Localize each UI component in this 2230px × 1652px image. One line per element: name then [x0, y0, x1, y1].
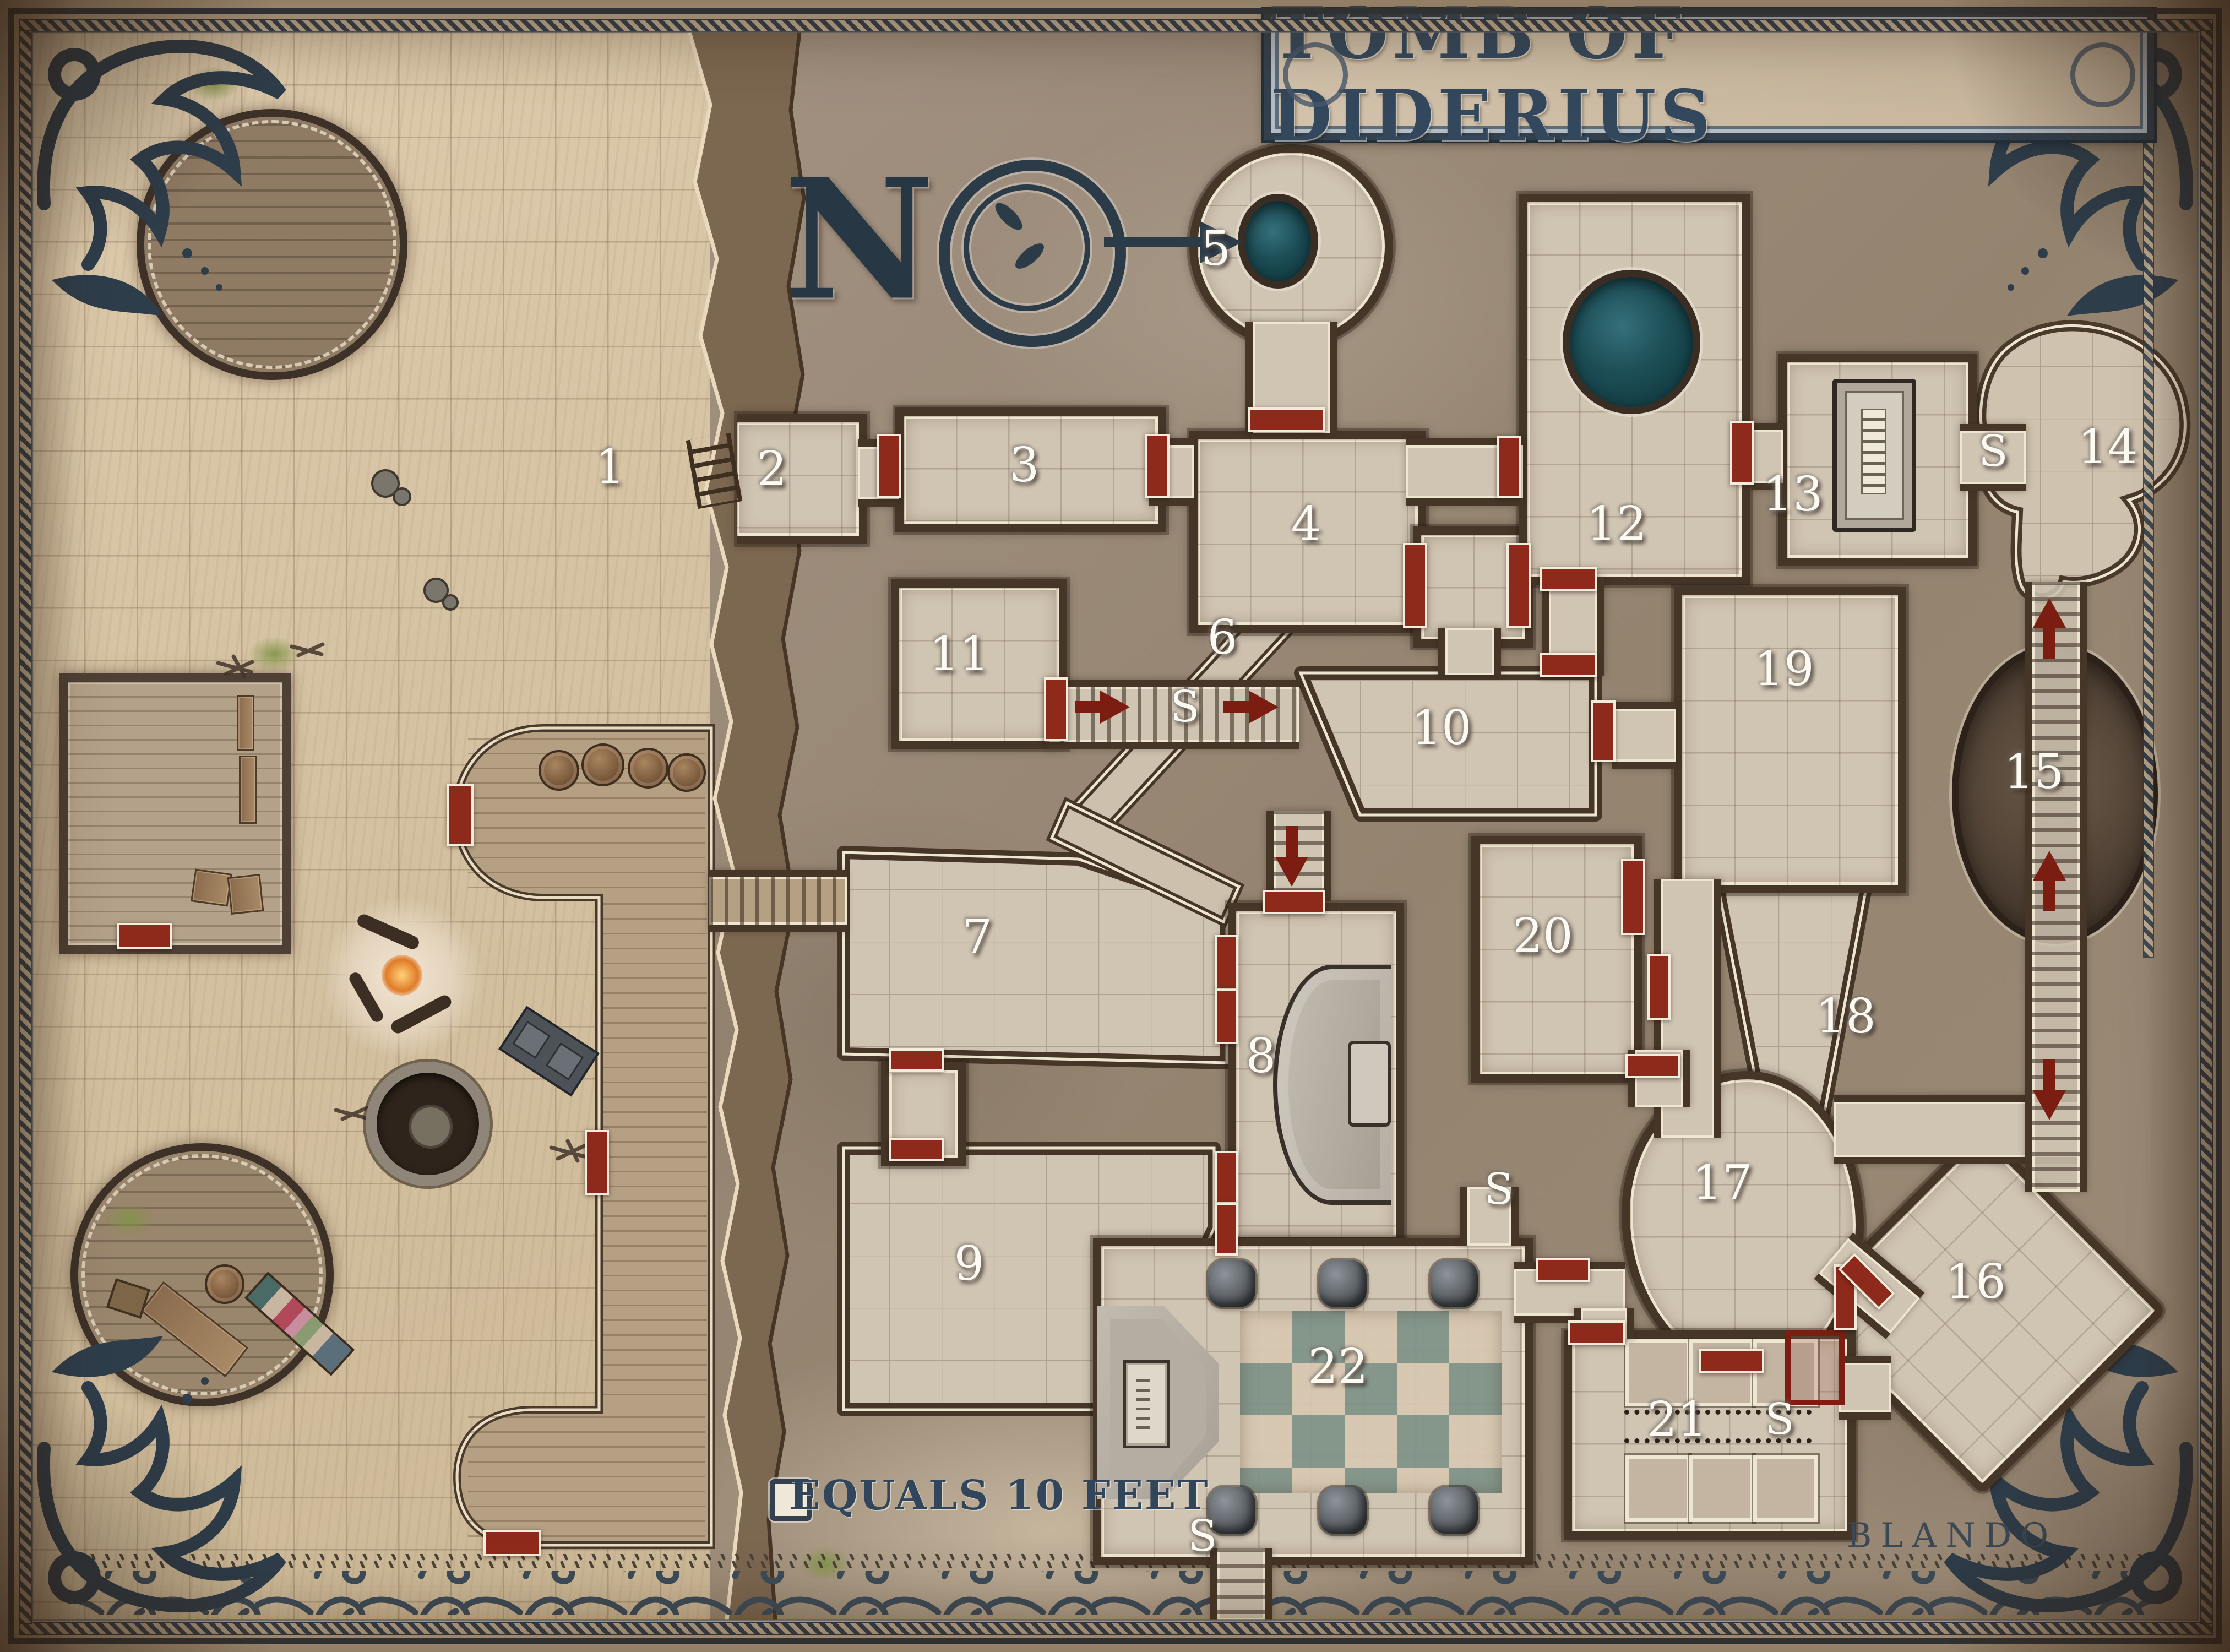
- dock-planks: [468, 1416, 705, 1539]
- frame-braid-bottom: [19, 1622, 2213, 1635]
- room-label-14: 14: [2077, 420, 2137, 475]
- artist-signature: BLANDO: [1847, 1515, 2057, 1556]
- room-label-2: 2: [757, 442, 787, 497]
- frame-braid-left: [19, 30, 32, 1624]
- stairs-arrow-down-icon: [1275, 857, 1308, 887]
- prison-cell: [1689, 1455, 1754, 1522]
- secret-marker-stairs: S: [1170, 682, 1199, 732]
- door-boardwalk: [585, 1130, 609, 1195]
- prison-cell: [1625, 1455, 1690, 1522]
- stair-corridor-10-8: [1266, 811, 1331, 901]
- compass-rose-inner: [964, 184, 1090, 311]
- room-label-9: 9: [954, 1236, 985, 1291]
- log-icon: [389, 993, 453, 1036]
- boulder-icon: [372, 470, 458, 610]
- door-stairs-11: [1044, 677, 1068, 741]
- stairs-22-south: [1210, 1548, 1272, 1620]
- statue-icon: [1319, 1260, 1367, 1307]
- door-antechamber-south: [889, 1138, 944, 1161]
- door-12-south: [1540, 567, 1597, 591]
- bridge-to-dungeon: [709, 870, 847, 932]
- well-cap: [409, 1105, 453, 1149]
- door-10-north: [1540, 653, 1597, 677]
- pool-room-5: [1238, 194, 1318, 289]
- room-19: [1674, 587, 1906, 893]
- table-icon: [191, 869, 232, 907]
- barrel-icon: [628, 748, 668, 789]
- campfire-icon: [322, 898, 482, 1057]
- door-21-north: [1568, 1320, 1625, 1345]
- frame-braid-right: [2200, 30, 2213, 1624]
- sarcophagus-room-13: [1832, 379, 1916, 532]
- door-17-north: [1625, 1054, 1680, 1078]
- stairs-treads: [1274, 811, 1324, 901]
- corner-flourish-top-left: [43, 46, 281, 314]
- corridor-vestibule-10: [1438, 628, 1501, 675]
- room-label-5: 5: [1201, 221, 1231, 276]
- bench-icon: [239, 756, 257, 824]
- stairs-arrow-east-icon: [1100, 691, 1130, 724]
- room-label-6: 6: [1208, 610, 1238, 665]
- door-10-east: [1591, 700, 1616, 762]
- corridor-21-16: [1839, 1356, 1891, 1420]
- door-corridor-21: [1536, 1258, 1590, 1282]
- door-dock-south: [483, 1530, 541, 1556]
- frame-braid-top: [19, 19, 2213, 32]
- statue-icon: [1319, 1487, 1367, 1534]
- room-label-10: 10: [1411, 700, 1471, 756]
- room-label-7: 7: [962, 910, 993, 965]
- secret-marker-13-14: S: [1978, 427, 2008, 476]
- room-label-4: 4: [1291, 497, 1321, 552]
- door-building: [117, 923, 172, 949]
- room-label-1: 1: [595, 439, 626, 494]
- door-dock-west: [447, 784, 474, 846]
- room-label-19: 19: [1754, 642, 1814, 697]
- door-20-east: [1621, 859, 1645, 935]
- door-antechamber-north: [889, 1048, 944, 1072]
- corridor-10-19: [1612, 702, 1676, 769]
- stairs-arrow-down-icon: [2033, 1090, 2066, 1120]
- bench-icon: [237, 695, 254, 751]
- stairs-arrow-up-icon: [2033, 598, 2066, 628]
- statue-icon: [1431, 1260, 1478, 1307]
- door-12-east: [1730, 421, 1754, 485]
- door-8-north: [1263, 890, 1325, 914]
- room-label-12: 12: [1586, 497, 1646, 552]
- secret-marker-21-east: S: [1765, 1395, 1794, 1444]
- room-label-20: 20: [1513, 909, 1573, 964]
- door-3-east: [1145, 434, 1170, 498]
- door-3-west: [877, 434, 901, 498]
- statue-icon: [1431, 1487, 1478, 1534]
- log-icon: [347, 970, 385, 1024]
- rune-carving: [1861, 409, 1886, 494]
- room-label-18: 18: [1815, 989, 1875, 1044]
- secret-marker-22-south: S: [1188, 1512, 1217, 1561]
- door-7-8-a: [1215, 935, 1238, 990]
- pool-room-12: [1563, 270, 1700, 414]
- bridge-planks: [709, 877, 847, 925]
- room-label-16: 16: [1945, 1254, 2005, 1309]
- door-17-south: [1699, 1349, 1764, 1373]
- sarcophagus-lid: [1845, 391, 1904, 520]
- statue-icon: [1208, 1260, 1255, 1307]
- boardwalk-planks: [603, 903, 707, 1405]
- secret-marker-22-north: S: [1484, 1165, 1513, 1214]
- well-icon: [366, 1062, 490, 1186]
- door-vestibule-east: [1506, 543, 1531, 628]
- scale-legend: EQUALS 10 FEET: [790, 1472, 1210, 1519]
- room-label-15: 15: [2004, 745, 2064, 800]
- altar-room-22: [1123, 1360, 1170, 1448]
- barrel-icon: [581, 743, 624, 786]
- door-7-8-b: [1215, 989, 1238, 1044]
- prison-cell: [1753, 1455, 1818, 1522]
- cart-panel: [513, 1021, 551, 1059]
- throne-icon: [1348, 1041, 1391, 1127]
- compass-north-letter: N: [784, 143, 934, 337]
- rope-border-detail: [2143, 53, 2154, 958]
- room-label-13: 13: [1763, 467, 1823, 522]
- compass-arrow-shaft: [1104, 237, 1200, 247]
- stairs-arrow-up-icon: [2033, 851, 2066, 881]
- door-8-9-a: [1215, 1151, 1238, 1204]
- cart-panel: [546, 1042, 584, 1080]
- stairs-treads: [1217, 1548, 1265, 1620]
- door-corridor-18-west: [1647, 954, 1671, 1020]
- stairs-arrow-east-icon: [1249, 691, 1279, 724]
- room-label-17: 17: [1692, 1155, 1752, 1210]
- door-vestibule-west: [1403, 543, 1427, 628]
- door-8-9-b: [1215, 1203, 1238, 1256]
- log-icon: [355, 912, 421, 952]
- barrel-icon: [205, 1264, 244, 1304]
- border-scroll-band: [66, 1571, 2164, 1615]
- barrel-icon: [539, 750, 579, 791]
- rune-carving: [1136, 1373, 1150, 1430]
- barrel-icon: [667, 753, 706, 792]
- table-icon: [227, 874, 264, 915]
- room-label-8: 8: [1246, 1029, 1276, 1084]
- room-2-ledge: [737, 414, 867, 544]
- tomb-of-diderius-map: N TOMB OF DIDERIUS EQUALS 10 FEET BLANDO…: [0, 0, 2230, 1652]
- room-label-11: 11: [929, 627, 989, 682]
- door-5-neck: [1248, 407, 1325, 432]
- pit-trap-outline: [1785, 1330, 1845, 1405]
- flame-icon: [382, 955, 422, 996]
- room-label-22: 22: [1308, 1339, 1368, 1394]
- room-label-3: 3: [1009, 438, 1040, 493]
- room-label-21: 21: [1647, 1392, 1707, 1447]
- door-12-west: [1497, 436, 1521, 498]
- checkerboard-floor-22: [1240, 1311, 1502, 1493]
